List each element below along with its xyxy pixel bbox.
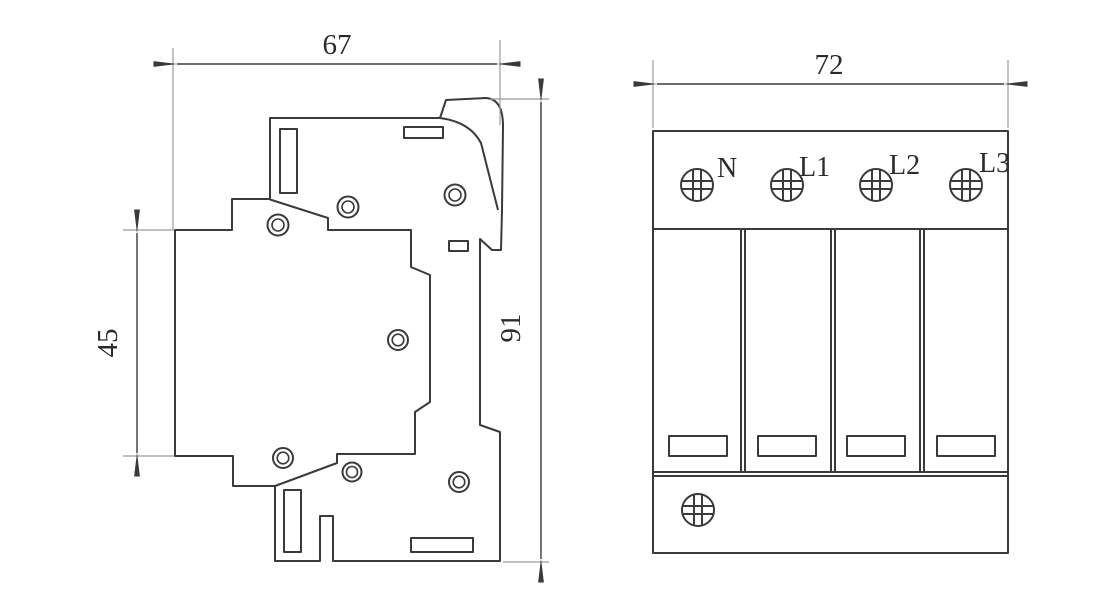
mounting-hole-icon [273,448,293,468]
mounting-hole-icon [338,197,359,218]
screw-terminal-icon [681,169,713,201]
front-view [653,131,1008,553]
screw-terminal-icon [950,169,982,201]
dimension-72: 72 [653,49,1008,128]
dimension-72-label: 72 [815,49,844,81]
side-window-bottom [411,538,473,552]
module-window [847,436,905,456]
terminal-label-l1: L1 [799,152,830,183]
terminal-label-l3: L3 [979,148,1010,179]
mounting-hole-icon [388,330,408,350]
side-clip-detail [449,241,468,251]
mounting-hole-icon [343,463,362,482]
screw-terminal-icon [682,494,714,526]
side-slot-top [280,129,297,193]
dimension-67-label: 67 [323,29,352,61]
module-window [669,436,727,456]
screw-terminal-icon [860,169,892,201]
side-window-top [404,127,443,138]
technical-drawing-page: 67 45 91 [0,0,1120,594]
terminal-label-l2: L2 [889,150,920,181]
side-view [175,98,503,561]
module-window [937,436,995,456]
technical-drawing: 67 45 91 [0,0,1120,594]
terminal-label-n: N [717,153,737,184]
dimension-91: 91 [490,99,549,562]
dimension-45: 45 [92,230,174,456]
terminal-labels: N L1 L2 L3 [717,148,1010,184]
dimension-45-label: 45 [92,329,124,358]
mounting-hole-icon [449,472,469,492]
side-view-internal-step [270,200,430,487]
mounting-hole-icon [268,215,289,236]
module-window [758,436,816,456]
dimension-91-label: 91 [495,314,527,343]
mounting-hole-icon [445,185,466,206]
side-slot-bottom [284,490,301,552]
